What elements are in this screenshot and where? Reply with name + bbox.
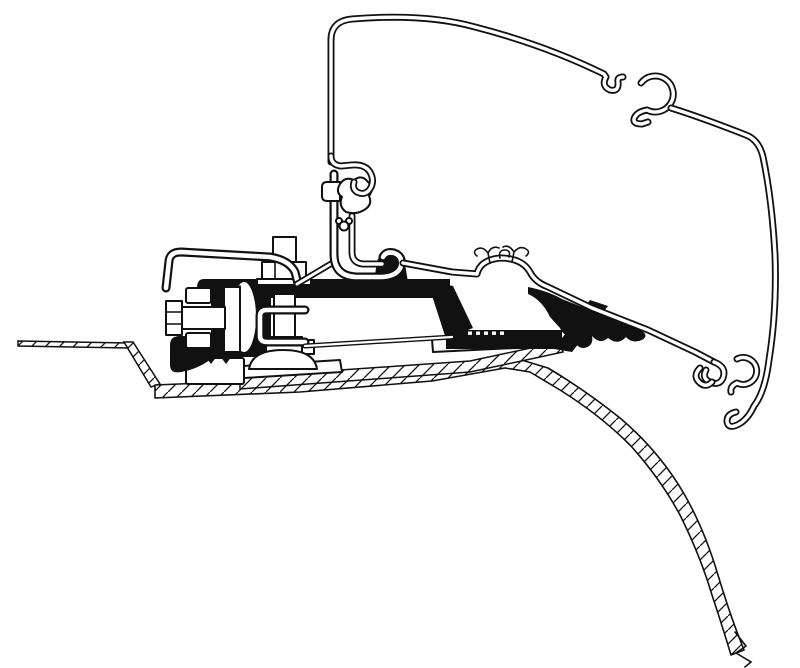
case-top-edge: [331, 17, 623, 162]
rail-trefoil: [340, 222, 349, 231]
bolt-flange-top: [186, 288, 211, 303]
roof-panel: [18, 333, 751, 667]
clamp-rod-inner: [305, 337, 452, 346]
roof-thin-sheet: [18, 341, 128, 348]
bolt-flange-bottom: [186, 333, 211, 348]
clamp-plate: [224, 287, 240, 352]
awning-adapter-cross-section: [0, 0, 800, 668]
horizontal-bolt-head: [166, 301, 182, 335]
serration-teeth: [190, 356, 232, 364]
rail-inner-wall: [352, 216, 382, 264]
horizontal-bolt-shaft: [181, 307, 225, 329]
roof-main-band: [155, 355, 744, 655]
technical-diagram-canvas: [0, 0, 800, 668]
awning-case-profile: [331, 17, 775, 426]
vertical-bolt-lower-shaft: [274, 294, 295, 341]
roof-step: [124, 342, 160, 387]
case-top-edge-2: [331, 17, 623, 162]
